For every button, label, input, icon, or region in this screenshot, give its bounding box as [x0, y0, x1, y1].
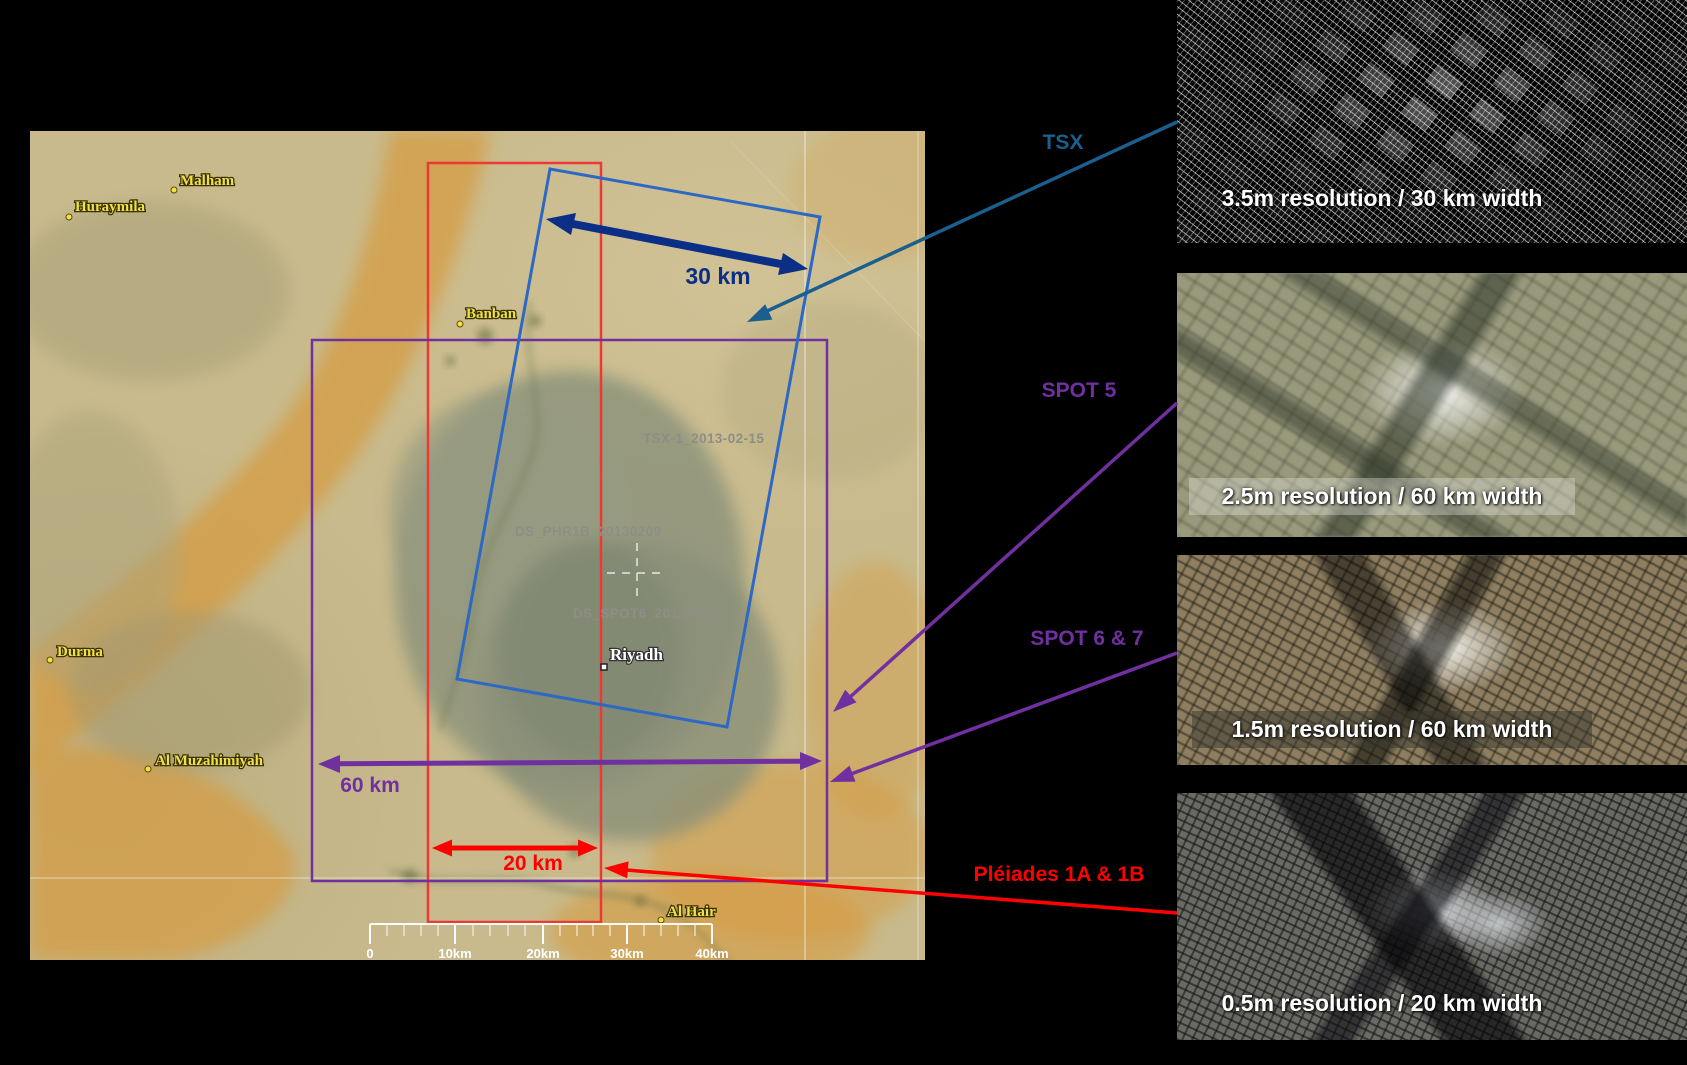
- satellite-label-spot5: SPOT 5: [1029, 379, 1129, 403]
- slide-canvas: 30 km 60 km 20 km TSX-1_2: [0, 0, 1687, 1065]
- satellite-label-pleiades: Pléiades 1A & 1B: [959, 863, 1159, 887]
- map-overlay: 30 km 60 km 20 km TSX-1_2: [30, 131, 925, 960]
- scale-label-40km: 40km: [695, 946, 728, 960]
- place-label-almuzahimiyah: Al Muzahimiyah: [155, 753, 264, 769]
- tsx-sample-caption: 3.5m resolution / 30 km width: [1189, 180, 1575, 217]
- pleiades-sample-caption: 0.5m resolution / 20 km width: [1189, 985, 1575, 1022]
- scale-label-30km: 30km: [610, 946, 643, 960]
- place-label-banban: Banban: [466, 306, 517, 322]
- scene-id-phr: DS_PHR1B_20130209: [515, 524, 661, 539]
- riyadh-dot: [601, 664, 607, 670]
- scene-id-tsx: TSX-1_2013-02-15: [643, 431, 764, 446]
- spot67-sample-image: 1.5m resolution / 60 km width: [1177, 555, 1687, 765]
- place-label-huraymila: Huraymila: [75, 199, 145, 215]
- town-dot-huraymila: [66, 214, 72, 220]
- spot5-sample-image: 2.5m resolution / 60 km width: [1177, 273, 1687, 537]
- spot-width-label: 60 km: [340, 774, 400, 797]
- place-label-durma: Durma: [57, 644, 103, 660]
- town-dot-malham: [171, 187, 177, 193]
- scale-label-10km: 10km: [438, 946, 471, 960]
- riyadh-label: Riyadh: [610, 645, 663, 664]
- tsx-sample-image: 3.5m resolution / 30 km width: [1177, 0, 1687, 243]
- scale-label-0: 0: [366, 946, 373, 960]
- place-label-malham: Malham: [180, 173, 235, 189]
- pleiades-sample-image: 0.5m resolution / 20 km width: [1177, 793, 1687, 1040]
- tsx-width-label: 30 km: [685, 263, 750, 289]
- scale-label-20km: 20km: [526, 946, 559, 960]
- town-dot-alhair: [658, 917, 664, 923]
- tsx-width-arrow: 30 km: [546, 213, 808, 289]
- spot5-sample-caption: 2.5m resolution / 60 km width: [1189, 478, 1575, 515]
- pleiades-width-arrow: 20 km: [432, 840, 598, 876]
- pleiades-width-label: 20 km: [503, 852, 563, 875]
- scene-id-spot6: DS_SPOT6_20130216: [573, 606, 718, 621]
- town-dot-durma: [47, 657, 53, 663]
- place-label-alhair: Al Hair: [667, 904, 716, 920]
- riyadh-map: 30 km 60 km 20 km TSX-1_2: [30, 131, 925, 960]
- satellite-label-spot67: SPOT 6 & 7: [1012, 627, 1162, 651]
- town-dot-almuzahimiyah: [145, 766, 151, 772]
- town-dot-banban: [457, 321, 463, 327]
- spot67-sample-caption: 1.5m resolution / 60 km width: [1192, 711, 1592, 748]
- satellite-label-tsx: TSX: [1013, 131, 1113, 155]
